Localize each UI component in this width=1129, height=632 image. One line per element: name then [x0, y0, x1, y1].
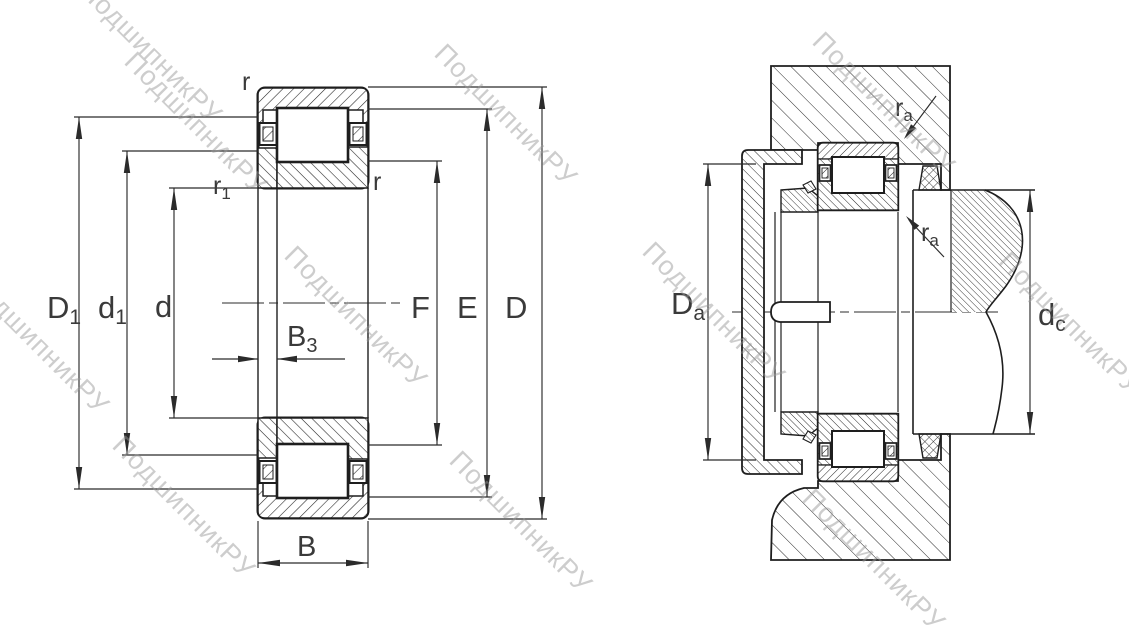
label-B: B	[297, 531, 316, 563]
label-d: d	[155, 289, 172, 324]
loose-rib-bottom	[781, 412, 818, 443]
label-dc: dc	[1038, 297, 1066, 336]
cage-left	[260, 461, 277, 483]
label-d1: d1	[98, 290, 127, 329]
spacer-top	[919, 166, 941, 190]
loose-rib-top	[781, 181, 818, 212]
shaft-end-detail	[771, 302, 830, 322]
left-view: D1 d1 d F E D B3 B r r r1	[47, 68, 547, 568]
label-r-side: r	[373, 168, 381, 196]
roller	[832, 431, 884, 467]
spacer-bottom	[919, 434, 941, 458]
mounted-bearing-bottom	[818, 414, 898, 481]
bearing-section-top	[258, 88, 368, 188]
cage-right	[350, 461, 367, 483]
label-ra-side: ra	[921, 219, 939, 250]
label-D1: D1	[47, 290, 81, 329]
roller	[832, 157, 884, 193]
roller	[277, 108, 348, 162]
label-E: E	[457, 290, 478, 325]
label-B3: B3	[287, 321, 317, 357]
drawing-canvas: D1 d1 d F E D B3 B r r r1	[0, 0, 1129, 632]
cage-right	[350, 123, 367, 145]
loose-rib	[258, 418, 277, 458]
right-view: Da dc ra ra	[671, 66, 1066, 560]
bearing-section-bottom	[258, 418, 368, 518]
mounted-bearing-top	[818, 143, 898, 210]
label-Da: Da	[671, 286, 705, 325]
bearing-drawing: D1 d1 d F E D B3 B r r r1	[0, 0, 1129, 632]
label-D: D	[505, 290, 527, 325]
roller	[277, 444, 348, 498]
dim-B3	[212, 356, 345, 362]
label-F: F	[411, 290, 430, 325]
label-r1: r1	[213, 172, 231, 203]
loose-rib	[258, 148, 277, 188]
dim-dc	[1027, 190, 1033, 434]
cage-left	[260, 123, 277, 145]
label-r-top: r	[242, 68, 250, 96]
